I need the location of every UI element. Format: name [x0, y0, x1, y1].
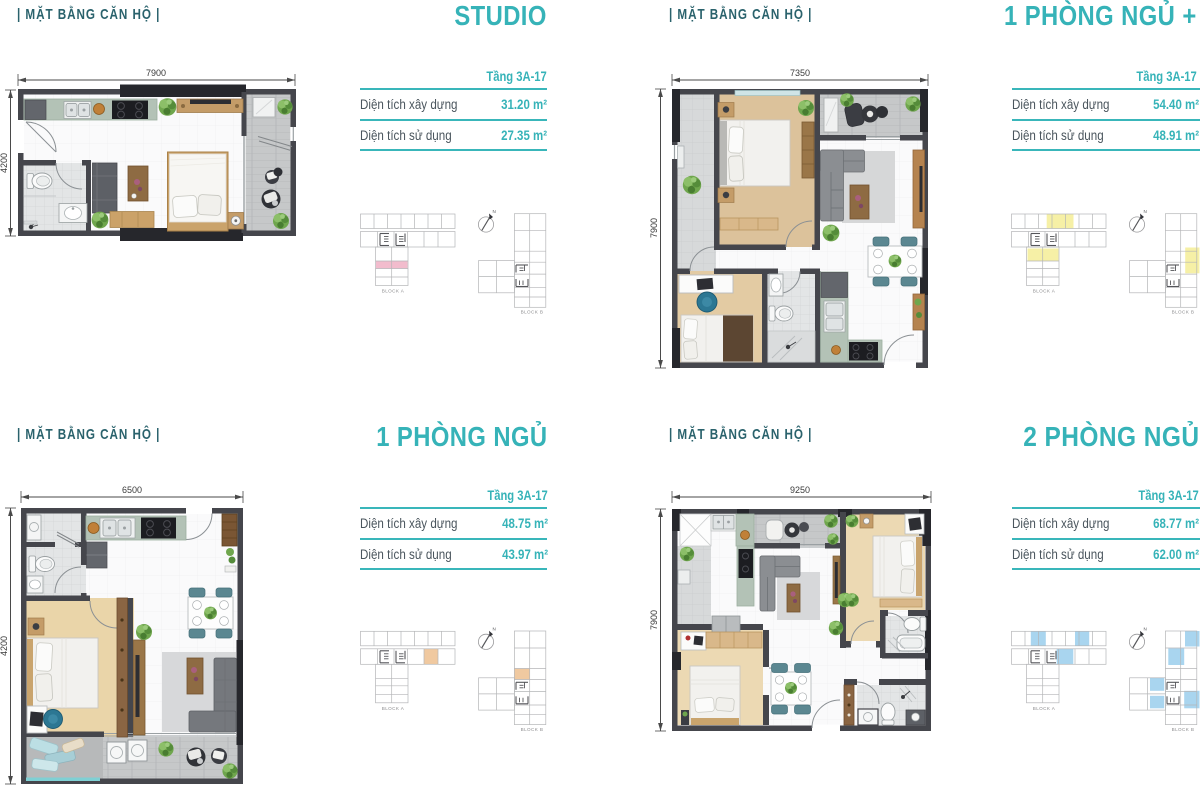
svg-text:BLOCK A: BLOCK A: [1033, 706, 1056, 711]
svg-text:BLOCK A: BLOCK A: [382, 706, 405, 711]
svg-text:4200: 4200: [0, 153, 9, 173]
svg-text:BLOCK B: BLOCK B: [521, 310, 544, 315]
svg-text:7900: 7900: [146, 68, 166, 78]
svg-text:7900: 7900: [649, 610, 659, 630]
svg-text:7350: 7350: [790, 68, 810, 78]
svg-text:BLOCK B: BLOCK B: [1172, 727, 1195, 732]
svg-text:4200: 4200: [0, 636, 9, 656]
svg-text:6500: 6500: [122, 485, 142, 495]
svg-text:9250: 9250: [790, 485, 810, 495]
svg-text:N: N: [1144, 209, 1147, 214]
svg-text:BLOCK B: BLOCK B: [1172, 310, 1195, 315]
svg-text:N: N: [493, 209, 496, 214]
svg-text:BLOCK A: BLOCK A: [1033, 289, 1056, 294]
svg-text:BLOCK B: BLOCK B: [521, 727, 544, 732]
svg-text:7900: 7900: [649, 218, 659, 238]
svg-text:N: N: [1144, 626, 1147, 631]
svg-text:N: N: [493, 626, 496, 631]
svg-text:BLOCK A: BLOCK A: [382, 289, 405, 294]
